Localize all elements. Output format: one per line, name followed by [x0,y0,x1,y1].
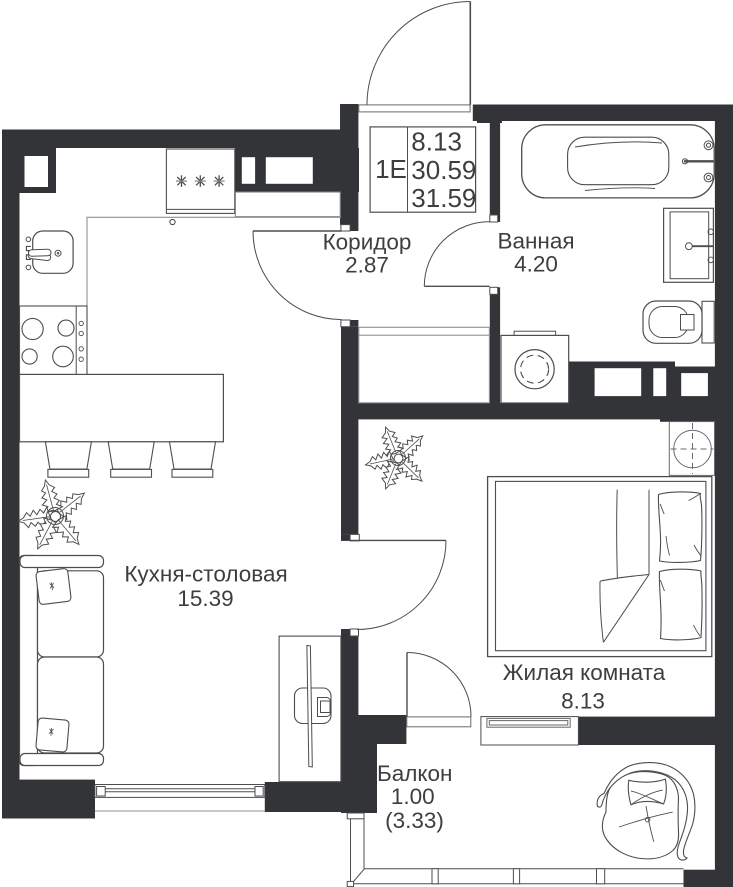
svg-text:(3.33): (3.33) [385,808,444,833]
svg-text:Ванная: Ванная [497,229,574,254]
svg-text:Кухня-столовая: Кухня-столовая [124,562,287,587]
svg-text:Балкон: Балкон [377,761,452,786]
svg-text:1Е: 1Е [375,154,407,184]
svg-text:8.13: 8.13 [411,127,462,157]
svg-text:31.59: 31.59 [411,183,476,213]
svg-text:2.87: 2.87 [345,253,389,278]
svg-text:1.00: 1.00 [391,784,435,809]
svg-text:8.13: 8.13 [561,689,605,714]
svg-text:Жилая комната: Жилая комната [503,660,666,685]
svg-text:30.59: 30.59 [411,155,476,185]
svg-text:Коридор: Коридор [323,230,412,255]
svg-text:4.20: 4.20 [514,252,558,277]
svg-text:15.39: 15.39 [177,586,233,611]
